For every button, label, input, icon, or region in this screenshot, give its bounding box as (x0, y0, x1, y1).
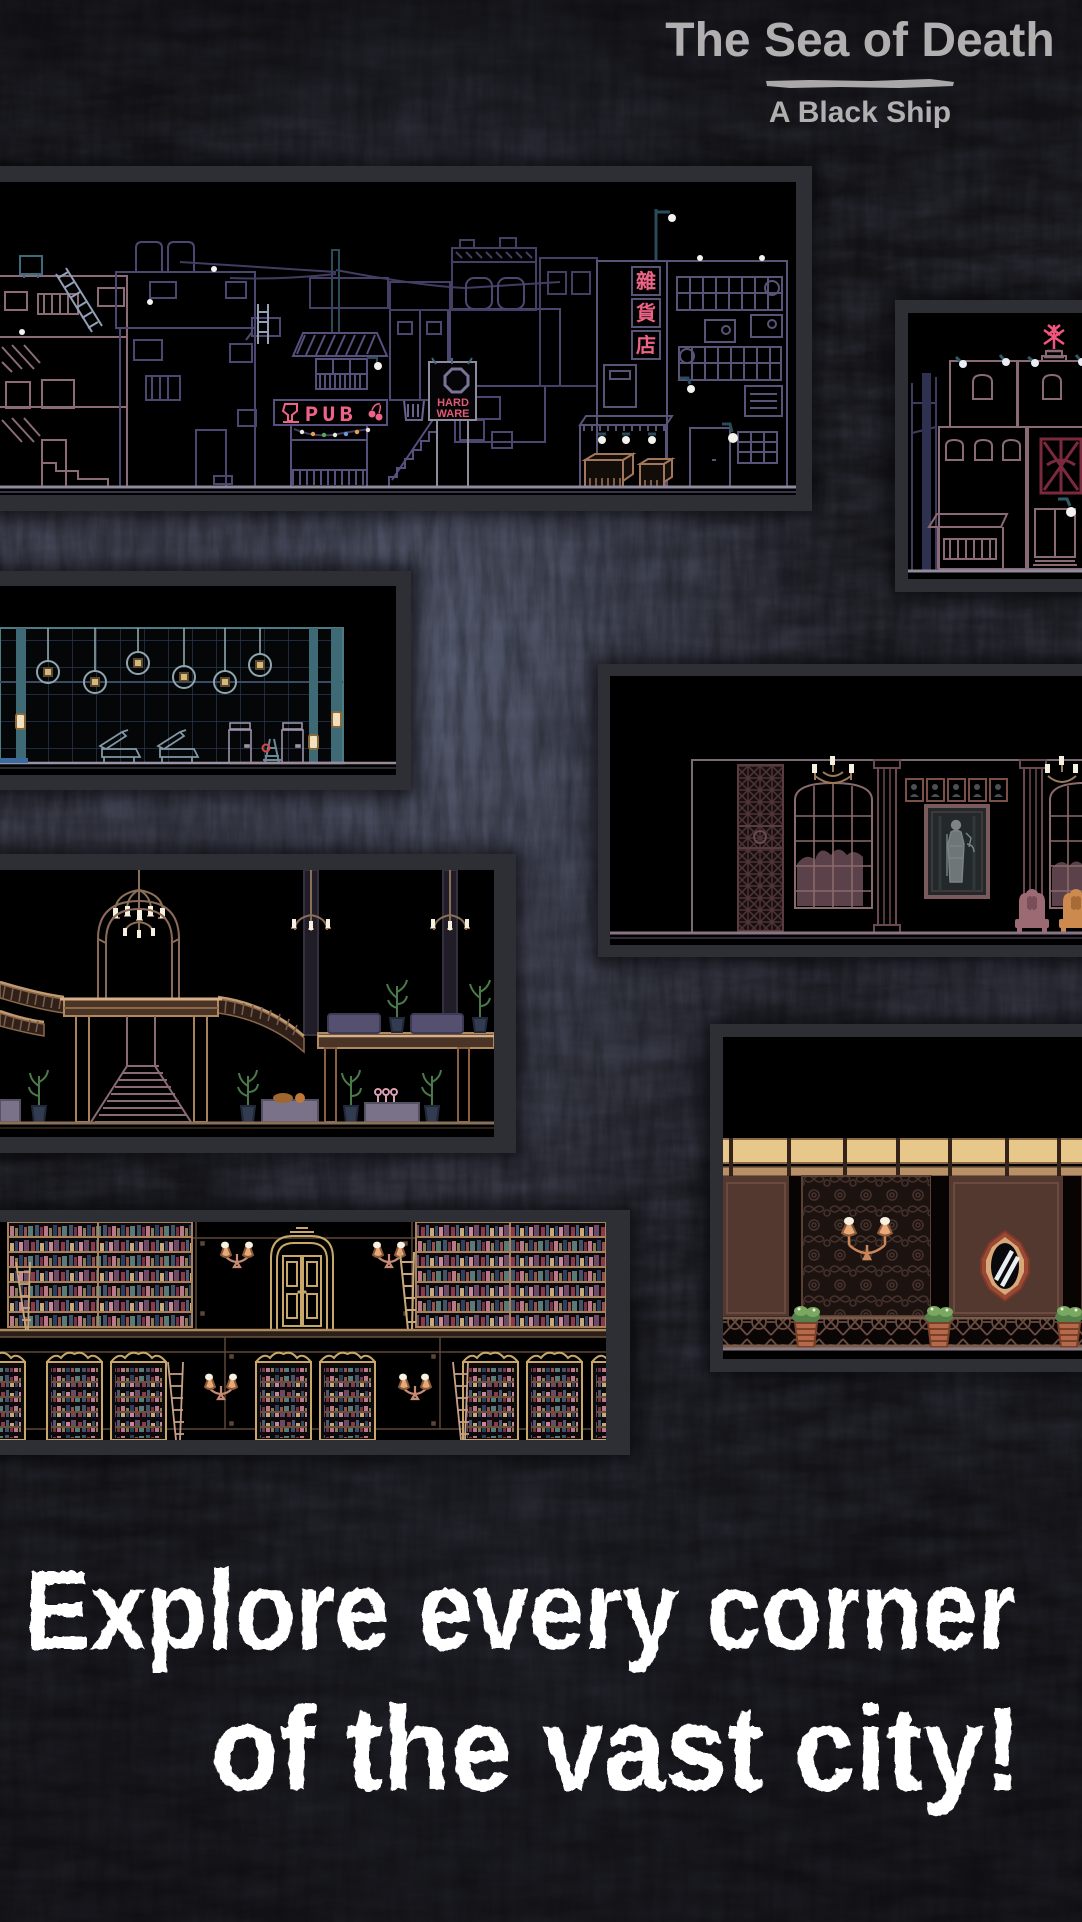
svg-text:雜: 雜 (636, 269, 656, 293)
svg-text:店: 店 (636, 334, 656, 357)
svg-text:PUB: PUB (305, 403, 357, 428)
svg-text:WARE: WARE (437, 408, 470, 420)
svg-text:貨: 貨 (636, 301, 656, 325)
